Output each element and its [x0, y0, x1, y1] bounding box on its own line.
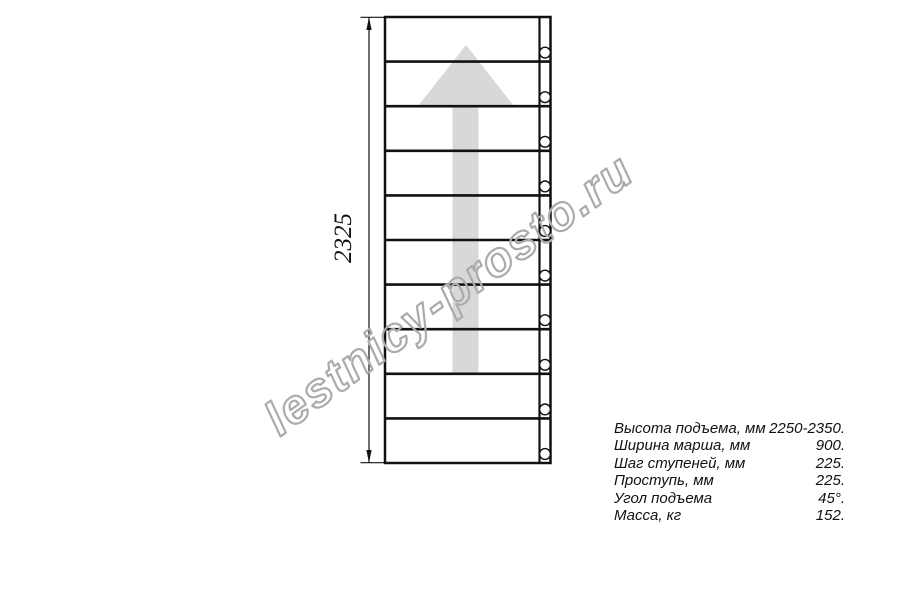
bolt-hole-icon: [540, 92, 551, 103]
drawing-sheet: 2325 lestnicy-prosto.ru Высота подъема, …: [0, 0, 900, 600]
spec-value: 45°.: [818, 490, 845, 507]
spec-row: Высота подъема, мм2250-2350.: [614, 420, 845, 437]
site-watermark: lestnicy-prosto.ru: [255, 144, 643, 446]
dimension-arrow-up-icon: [366, 17, 371, 30]
spec-value: 900.: [816, 437, 845, 454]
spec-label: Угол подъема: [614, 490, 712, 507]
spec-row: Ширина марша, мм900.: [614, 437, 845, 454]
spec-value: 225.: [816, 455, 845, 472]
spec-label: Шаг ступеней, мм: [614, 455, 745, 472]
specs-table: Высота подъема, мм2250-2350.Ширина марша…: [614, 420, 845, 524]
bolt-hole-icon: [540, 136, 551, 147]
spec-label: Ширина марша, мм: [614, 437, 750, 454]
dimension-arrow-down-icon: [366, 450, 371, 463]
spec-row: Масса, кг152.: [614, 507, 845, 524]
bolt-hole-icon: [540, 315, 551, 326]
spec-value: 152.: [816, 507, 845, 524]
bolt-hole-icon: [540, 270, 551, 281]
spec-label: Проступь, мм: [614, 472, 714, 489]
spec-label: Масса, кг: [614, 507, 681, 524]
spec-value: 225.: [816, 472, 845, 489]
spec-row: Проступь, мм225.: [614, 472, 845, 489]
bolt-hole-icon: [540, 47, 551, 58]
spec-value: 2250-2350.: [769, 420, 845, 437]
dimension-label: 2325: [330, 213, 357, 263]
bolt-hole-icon: [540, 359, 551, 370]
spec-row: Угол подъема45°.: [614, 490, 845, 507]
spec-row: Шаг ступеней, мм225.: [614, 455, 845, 472]
spec-label: Высота подъема, мм: [614, 420, 766, 437]
bolt-hole-icon: [540, 404, 551, 415]
up-arrow-head: [418, 45, 514, 106]
bolt-hole-icon: [540, 449, 551, 460]
